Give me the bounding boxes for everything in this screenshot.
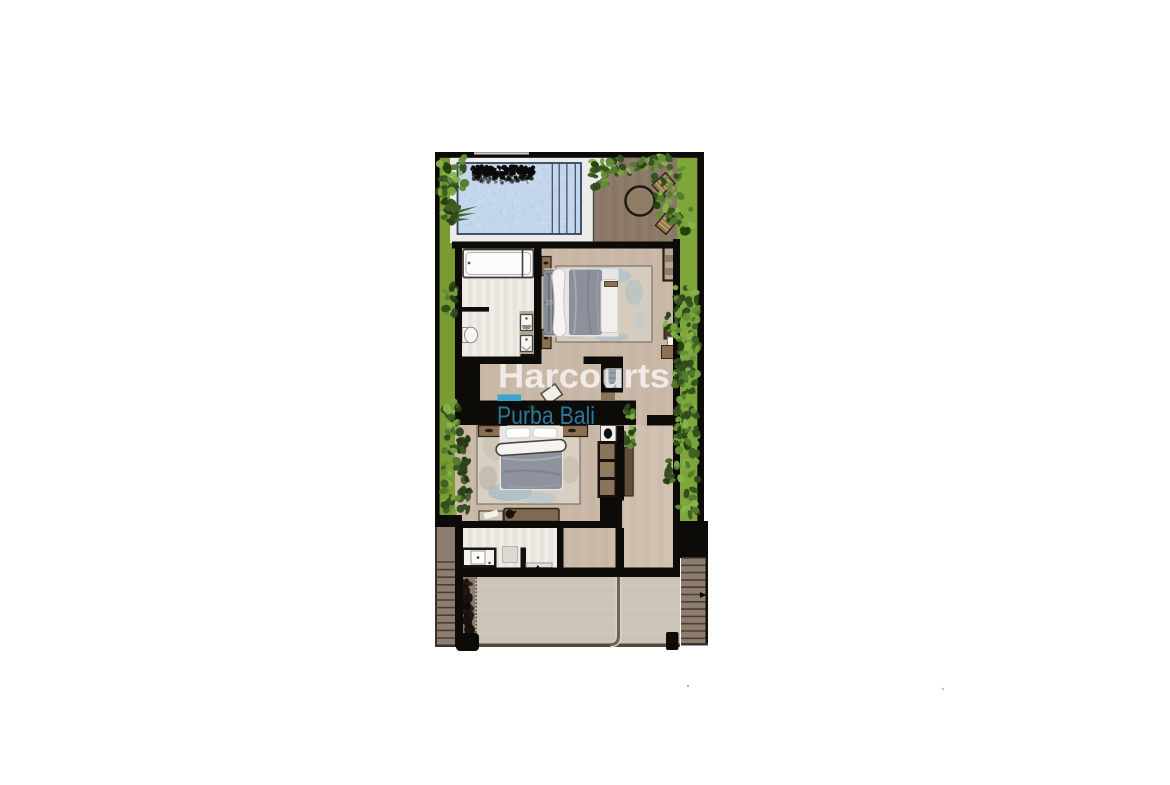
svg-text:Harcourts: Harcourts bbox=[498, 358, 670, 396]
svg-text:Purba Bali: Purba Bali bbox=[497, 402, 595, 430]
